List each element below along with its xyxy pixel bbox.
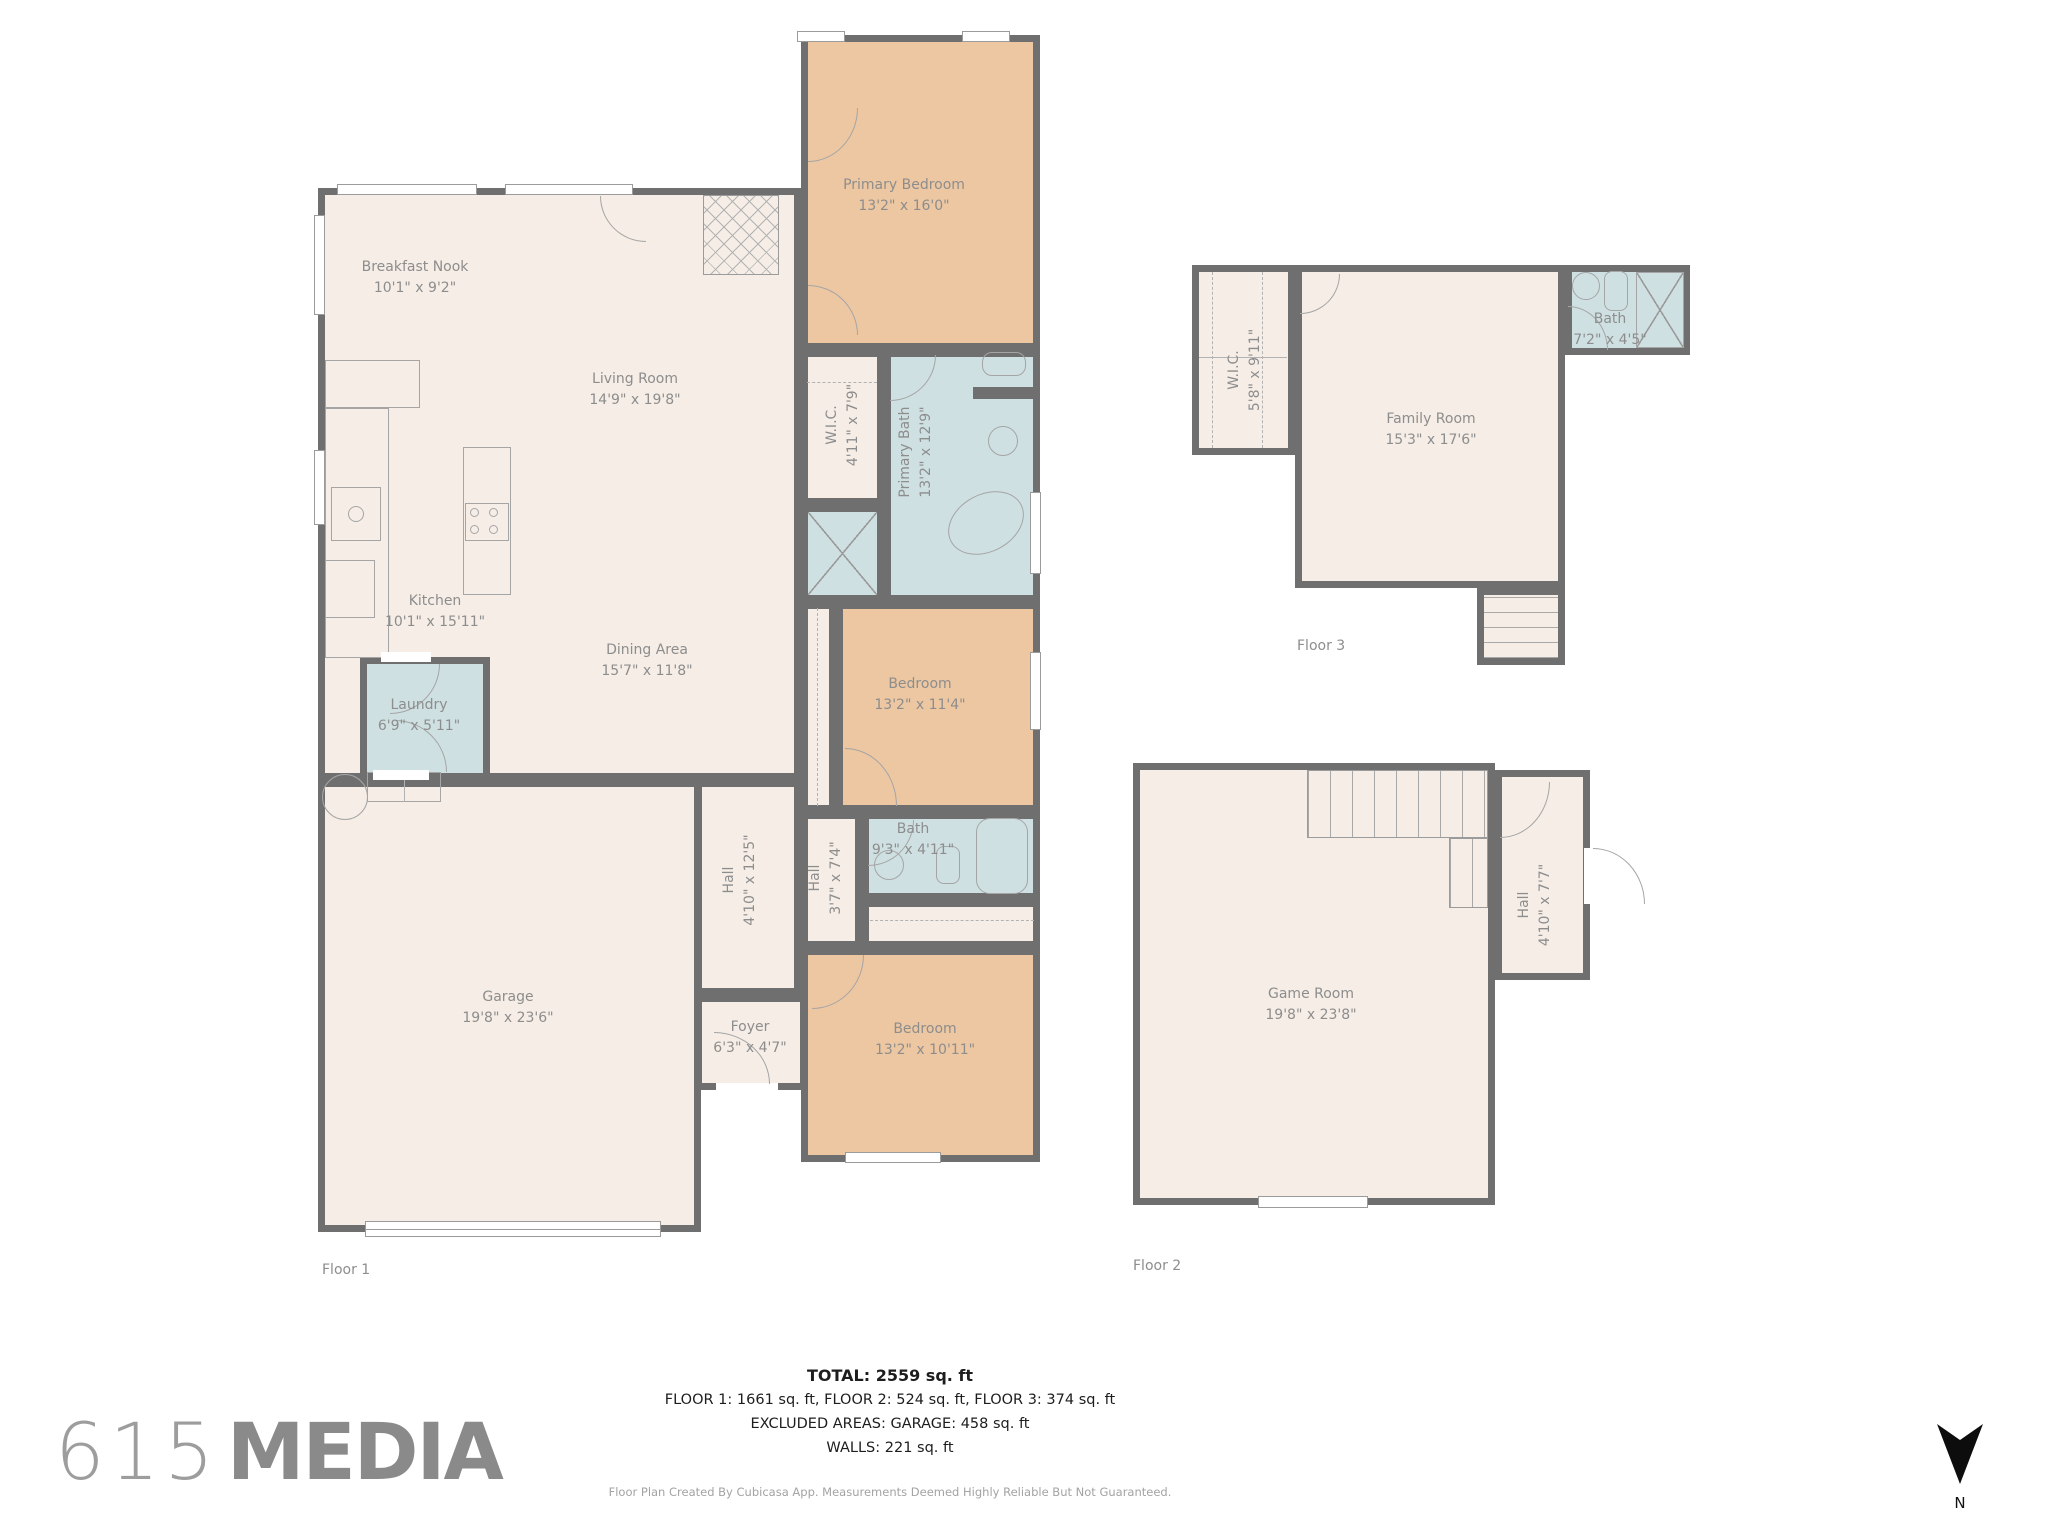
window xyxy=(797,31,845,42)
room-name: W.I.C. xyxy=(1224,329,1245,411)
logo-text: MEDIA xyxy=(227,1408,502,1498)
toilet-bath-floor3 xyxy=(1604,271,1628,311)
room-label-hall-big: Hall 4'10" x 12'5" xyxy=(719,834,761,925)
floor-1-label: Floor 1 xyxy=(322,1262,370,1278)
room-dims: 13'2" x 12'9" xyxy=(916,406,937,497)
room-label-family-room: Family Room 15'3" x 17'6" xyxy=(1385,409,1476,451)
room-label-laundry: Laundry 6'9" x 5'11" xyxy=(378,695,460,737)
compass: N xyxy=(1932,1420,1988,1512)
room-name: Laundry xyxy=(378,695,460,716)
floor-2-label: Floor 2 xyxy=(1133,1258,1181,1274)
company-logo: 615MEDIA xyxy=(55,1414,502,1492)
room-dims: 9'3" x 4'11" xyxy=(872,840,954,861)
garage-door xyxy=(365,1221,661,1237)
room-name: Hall xyxy=(805,841,826,914)
room-name: Game Room xyxy=(1265,984,1356,1005)
door-arc xyxy=(1593,848,1645,904)
room-label-hall-floor2: Hall 4'10" x 7'7" xyxy=(1514,864,1556,946)
stove-burner xyxy=(489,508,498,517)
room-name: Dining Area xyxy=(601,640,692,661)
room-dims: 4'10" x 7'7" xyxy=(1535,864,1556,946)
room-name: Primary Bath xyxy=(895,406,916,497)
excluded-areas: EXCLUDED AREAS: GARAGE: 458 sq. ft xyxy=(609,1412,1172,1436)
room-name: Foyer xyxy=(713,1017,786,1038)
room-name: Bedroom xyxy=(875,1019,975,1040)
room-dims: 10'1" x 15'11" xyxy=(385,612,485,633)
floor-plan-page: Breakfast Nook 10'1" x 9'2" Living Room … xyxy=(0,0,2048,1536)
room-dims: 7'2" x 4'5" xyxy=(1573,330,1646,351)
room-label-bedroom-bottom: Bedroom 13'2" x 10'11" xyxy=(875,1019,975,1061)
toilet-primary-bath xyxy=(982,352,1026,376)
stove-burner xyxy=(489,525,498,534)
window xyxy=(1258,1196,1368,1208)
refrigerator xyxy=(325,560,375,618)
room-dims: 13'2" x 11'4" xyxy=(874,695,965,716)
room-label-garage: Garage 19'8" x 23'6" xyxy=(462,987,553,1029)
room-name: W.I.C. xyxy=(822,384,843,466)
closet-middle xyxy=(801,602,836,812)
floor-areas: FLOOR 1: 1661 sq. ft, FLOOR 2: 524 sq. f… xyxy=(609,1388,1172,1412)
room-name: Family Room xyxy=(1385,409,1476,430)
room-name: Primary Bedroom xyxy=(843,175,965,196)
room-dims: 19'8" x 23'6" xyxy=(462,1008,553,1029)
closet-under-bath xyxy=(862,900,1040,948)
room-label-bath-floor1: Bath 9'3" x 4'11" xyxy=(872,819,954,861)
stove-burner xyxy=(470,525,479,534)
stairs-floor2 xyxy=(1307,770,1488,838)
room-label-dining-area: Dining Area 15'7" x 11'8" xyxy=(601,640,692,682)
room-label-breakfast-nook: Breakfast Nook 10'1" x 9'2" xyxy=(362,257,469,299)
room-label-hall-small: Hall 3'7" x 7'4" xyxy=(805,841,847,914)
window xyxy=(505,184,633,195)
window xyxy=(314,450,325,525)
room-label-bedroom-middle: Bedroom 13'2" x 11'4" xyxy=(874,674,965,716)
window xyxy=(1030,652,1041,730)
room-dims: 15'7" x 11'8" xyxy=(601,661,692,682)
stairs-floor3 xyxy=(1477,588,1565,665)
room-dims: 14'9" x 19'8" xyxy=(589,390,680,411)
room-dims: 13'2" x 10'11" xyxy=(875,1040,975,1061)
room-label-wic-floor1: W.I.C. 4'11" x 7'9" xyxy=(822,384,864,466)
room-label-living-room: Living Room 14'9" x 19'8" xyxy=(589,369,680,411)
room-dims: 3'7" x 7'4" xyxy=(826,841,847,914)
room-label-wic-floor3: W.I.C. 5'8" x 9'11" xyxy=(1224,329,1266,411)
room-label-primary-bedroom: Primary Bedroom 13'2" x 16'0" xyxy=(843,175,965,217)
kitchen-sink-basin xyxy=(348,506,364,522)
sink-bath-floor3 xyxy=(1572,272,1600,300)
room-dims: 13'2" x 16'0" xyxy=(843,196,965,217)
room-dims: 6'9" x 5'11" xyxy=(378,716,460,737)
window xyxy=(314,215,325,315)
window xyxy=(845,1152,941,1163)
room-label-foyer: Foyer 6'3" x 4'7" xyxy=(713,1017,786,1059)
door-gap xyxy=(381,652,431,662)
room-name: Bath xyxy=(1573,309,1646,330)
closet-rail xyxy=(870,920,1034,921)
room-dims: 19'8" x 23'8" xyxy=(1265,1005,1356,1026)
window xyxy=(962,31,1010,42)
stairs-hatch-floor1 xyxy=(703,195,779,275)
area-summary: TOTAL: 2559 sq. ft FLOOR 1: 1661 sq. ft,… xyxy=(609,1364,1172,1504)
room-dims: 4'11" x 7'9" xyxy=(843,384,864,466)
logo-number: 615 xyxy=(55,1408,219,1498)
room-dims: 10'1" x 9'2" xyxy=(362,278,469,299)
window xyxy=(337,184,477,195)
closet-rail xyxy=(807,382,877,383)
total-area: TOTAL: 2559 sq. ft xyxy=(609,1364,1172,1388)
walls-area: WALLS: 221 sq. ft xyxy=(609,1436,1172,1460)
room-name: Breakfast Nook xyxy=(362,257,469,278)
closet-rail xyxy=(1212,272,1213,448)
room-name: Kitchen xyxy=(385,591,485,612)
room-name: Bath xyxy=(872,819,954,840)
kitchen-counter-top xyxy=(325,360,420,408)
stove-burner xyxy=(470,508,479,517)
room-name: Bedroom xyxy=(874,674,965,695)
room-dims: 15'3" x 17'6" xyxy=(1385,430,1476,451)
window xyxy=(1030,492,1041,574)
room-dims: 4'10" x 12'5" xyxy=(740,834,761,925)
water-heater xyxy=(322,774,368,820)
room-label-bath-floor3: Bath 7'2" x 4'5" xyxy=(1573,309,1646,351)
room-name: Living Room xyxy=(589,369,680,390)
north-arrow-icon xyxy=(1934,1420,1986,1486)
disclaimer-text: Floor Plan Created By Cubicasa App. Meas… xyxy=(609,1480,1172,1504)
stairs-floor2-return xyxy=(1449,838,1488,908)
room-name: Hall xyxy=(719,834,740,925)
room-dims: 6'3" x 4'7" xyxy=(713,1038,786,1059)
sink-primary-bath xyxy=(988,426,1018,456)
floor-3-label: Floor 3 xyxy=(1297,638,1345,654)
room-label-primary-bath: Primary Bath 13'2" x 12'9" xyxy=(895,406,937,497)
front-door-gap xyxy=(716,1083,778,1093)
closet-rail xyxy=(817,608,818,806)
room-name: Garage xyxy=(462,987,553,1008)
room-label-kitchen: Kitchen 10'1" x 15'11" xyxy=(385,591,485,633)
north-label: N xyxy=(1932,1494,1988,1512)
shower-stall xyxy=(801,505,884,602)
room-name: Hall xyxy=(1514,864,1535,946)
room-label-game-room: Game Room 19'8" x 23'8" xyxy=(1265,984,1356,1026)
half-wall xyxy=(973,387,1040,399)
bathtub-bath1 xyxy=(976,818,1028,894)
room-dims: 5'8" x 9'11" xyxy=(1245,329,1266,411)
